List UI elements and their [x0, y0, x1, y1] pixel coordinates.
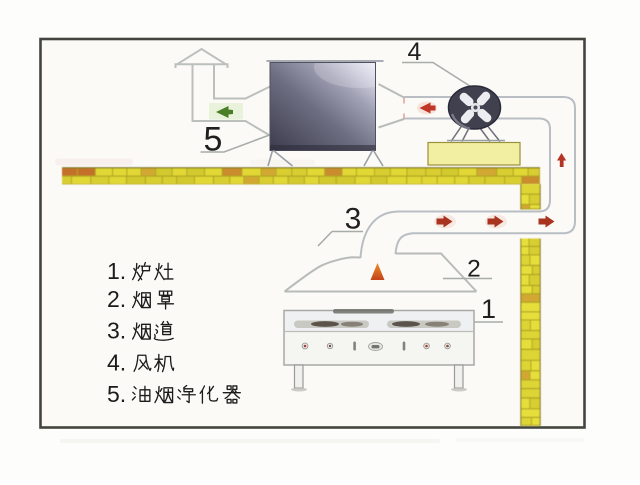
svg-text:3.: 3.	[107, 318, 126, 344]
svg-text:3: 3	[345, 203, 362, 236]
svg-text:5.: 5.	[107, 381, 126, 407]
svg-text:1: 1	[481, 294, 496, 324]
svg-text:1.: 1.	[107, 258, 126, 284]
svg-text:4.: 4.	[107, 350, 126, 376]
svg-text:2.: 2.	[107, 286, 126, 312]
